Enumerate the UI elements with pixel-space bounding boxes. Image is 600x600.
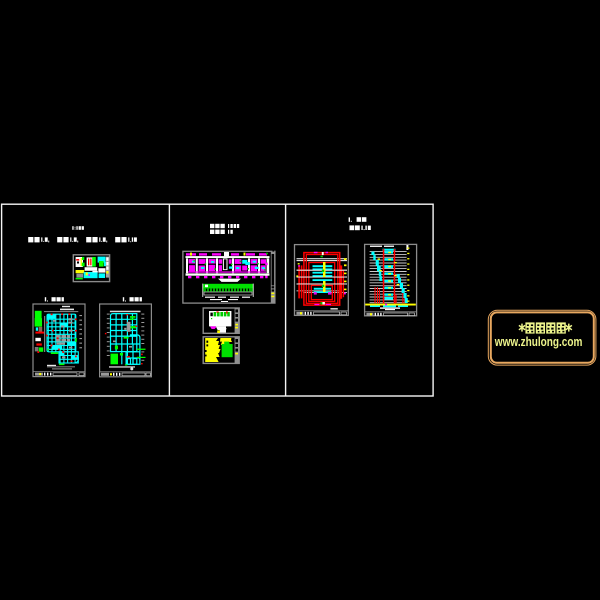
svg-text:www.zhulong.com: www.zhulong.com xyxy=(494,334,582,349)
